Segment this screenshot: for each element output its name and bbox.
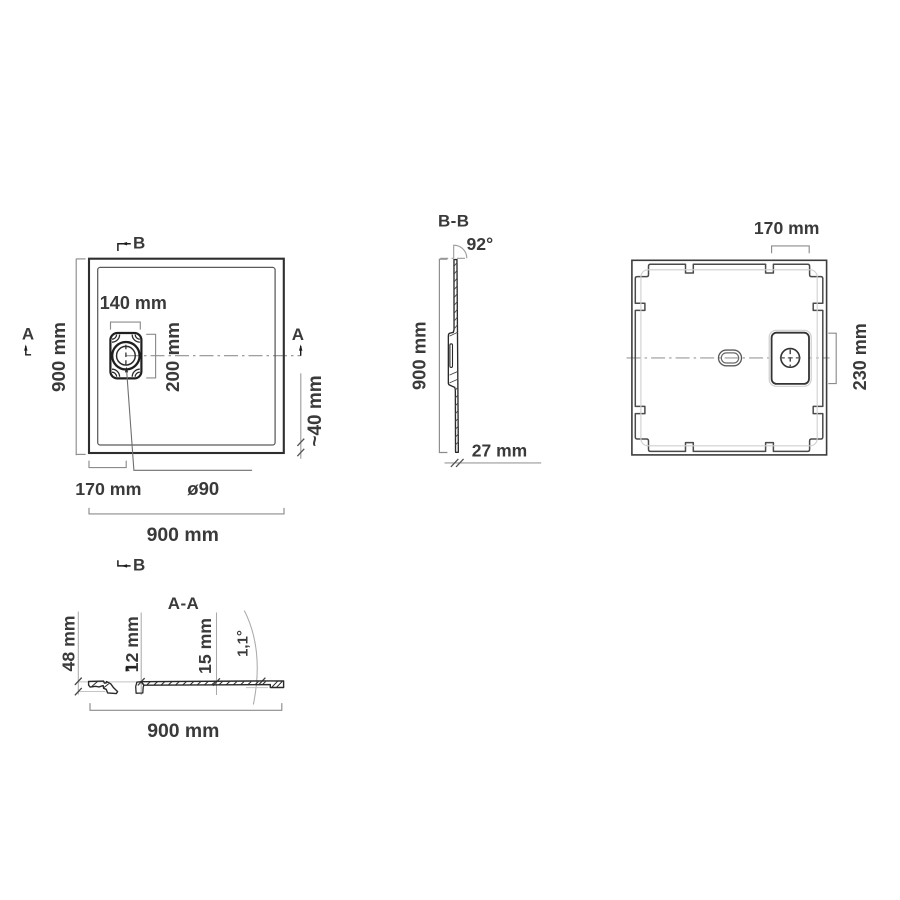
svg-text:140 mm: 140 mm <box>100 293 167 313</box>
svg-text:900 mm: 900 mm <box>147 720 219 742</box>
svg-text:230 mm: 230 mm <box>850 323 870 390</box>
svg-text:ø90: ø90 <box>187 478 219 499</box>
svg-text:15 mm: 15 mm <box>195 618 215 674</box>
svg-text:900 mm: 900 mm <box>408 322 429 391</box>
svg-text:A: A <box>292 325 304 344</box>
svg-text:200 mm: 200 mm <box>162 322 183 392</box>
svg-text:A: A <box>22 325 34 344</box>
svg-text:170 mm: 170 mm <box>75 479 141 499</box>
svg-text:900 mm: 900 mm <box>147 524 219 546</box>
svg-text:48 mm: 48 mm <box>58 615 78 671</box>
svg-text:900 mm: 900 mm <box>48 322 69 392</box>
svg-text:1,1°: 1,1° <box>235 630 252 657</box>
svg-text:B: B <box>133 556 145 575</box>
svg-text:~40 mm: ~40 mm <box>305 375 326 446</box>
svg-text:B: B <box>133 233 145 252</box>
svg-text:12 mm: 12 mm <box>122 616 142 672</box>
svg-text:27 mm: 27 mm <box>472 441 527 461</box>
svg-text:92°: 92° <box>467 234 494 254</box>
svg-text:170 mm: 170 mm <box>754 218 820 238</box>
svg-text:A-A: A-A <box>168 594 199 613</box>
svg-text:B-B: B-B <box>438 212 469 231</box>
